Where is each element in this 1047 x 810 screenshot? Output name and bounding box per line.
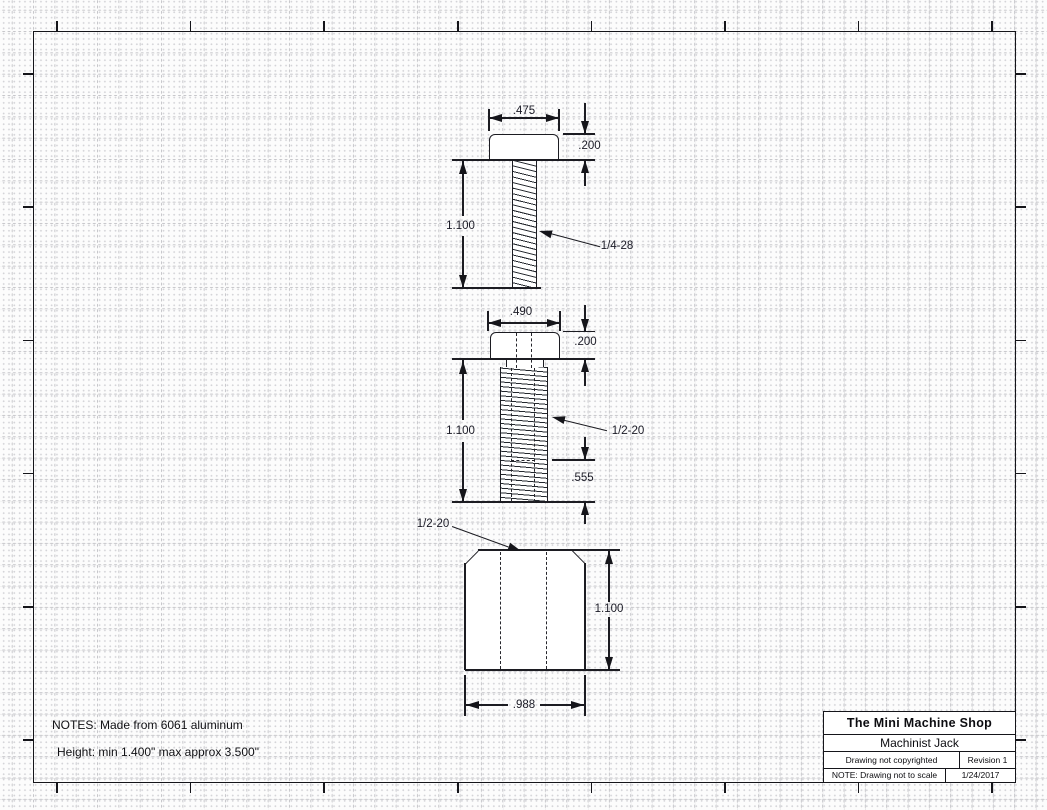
dimension-arrowhead: [459, 161, 467, 174]
dimension-arrowhead: [581, 359, 589, 372]
label-base-thread: 1/2-20: [414, 518, 452, 531]
title-block-row-scale: NOTE: Drawing not to scale 1/24/2017: [824, 768, 1015, 783]
border-tick-right: [1016, 340, 1026, 342]
hidden-hole-line: [546, 552, 547, 669]
border-tick-bottom: [858, 783, 860, 793]
dimension-arrowhead: [581, 160, 589, 173]
hidden-hole-bottom-line: [511, 460, 535, 461]
dimension-arrowhead: [547, 319, 560, 327]
jack-base-body: [465, 550, 585, 670]
note-height-range: Height: min 1.400" max approx 3.500": [57, 745, 259, 759]
border-tick-bottom: [457, 783, 459, 793]
drawing-line: [563, 331, 595, 332]
middle-screw-threaded-body: [500, 367, 548, 502]
border-tick-left: [23, 739, 33, 741]
dimension-arrowhead: [466, 701, 479, 709]
dimension-arrowhead: [489, 114, 502, 122]
dimension-arrowhead: [581, 121, 589, 134]
top-screw-head: [489, 134, 559, 160]
hidden-hole-line: [534, 368, 535, 502]
border-tick-right: [1016, 739, 1026, 741]
dimension-arrowhead: [459, 275, 467, 288]
drawing-line: [464, 563, 466, 670]
border-tick-bottom: [991, 783, 993, 793]
border-tick-top: [323, 21, 325, 31]
drawing-line: [464, 675, 465, 716]
title-block-date: 1/24/2017: [945, 769, 1015, 783]
border-tick-bottom: [190, 783, 192, 793]
border-tick-top: [991, 21, 993, 31]
dimension-arrowhead: [581, 319, 589, 332]
dimension-arrowhead: [546, 114, 559, 122]
label-top-screw-thread: 1/4-28: [598, 240, 636, 253]
border-tick-top: [724, 21, 726, 31]
dimension-arrowhead: [605, 551, 613, 564]
dimension-arrowhead: [581, 502, 589, 515]
dim-base-height: 1.100: [590, 603, 628, 616]
title-block-part-name: Machinist Jack: [824, 734, 1015, 752]
drawing-line: [584, 563, 586, 670]
border-tick-top: [591, 21, 593, 31]
top-screw-threaded-shaft: [512, 160, 537, 288]
border-tick-top: [858, 21, 860, 31]
title-block-scale-note: NOTE: Drawing not to scale: [824, 769, 945, 783]
drawing-line: [452, 501, 595, 503]
label-middle-screw-thread: 1/2-20: [609, 425, 647, 438]
border-tick-left: [23, 606, 33, 608]
dim-middle-screw-width: .490: [503, 306, 539, 319]
hidden-hole-line: [500, 552, 501, 669]
drawing-line: [465, 669, 620, 671]
hidden-hole-line: [531, 333, 532, 368]
dim-top-screw-width: .475: [506, 105, 542, 118]
border-tick-right: [1016, 606, 1026, 608]
dimension-arrowhead: [459, 489, 467, 502]
dim-top-screw-length: 1.100: [442, 220, 479, 233]
title-block-row-copyright: Drawing not copyrighted Revision 1: [824, 751, 1015, 768]
middle-screw-head: [490, 332, 560, 359]
border-tick-right: [1016, 73, 1026, 75]
dimension-arrowhead: [488, 319, 501, 327]
note-material: NOTES: Made from 6061 aluminum: [52, 718, 243, 732]
border-tick-left: [23, 73, 33, 75]
border-tick-bottom: [591, 783, 593, 793]
title-block-copyright: Drawing not copyrighted: [824, 752, 959, 768]
border-tick-bottom: [56, 783, 58, 793]
dimension-arrowhead: [459, 361, 467, 374]
hidden-hole-line: [511, 368, 512, 502]
border-tick-right: [1016, 473, 1026, 475]
dim-middle-screw-length: 1.100: [442, 425, 479, 438]
border-tick-left: [23, 340, 33, 342]
border-tick-left: [23, 206, 33, 208]
title-block-revision: Revision 1: [959, 752, 1015, 768]
drawing-line: [452, 358, 595, 360]
dim-base-width: .988: [506, 699, 542, 712]
dimension-arrowhead: [571, 701, 584, 709]
dimension-arrowhead: [581, 447, 589, 460]
border-tick-top: [56, 21, 58, 31]
dim-top-screw-head-height: .200: [576, 140, 603, 153]
dim-middle-screw-head-height: .200: [572, 336, 599, 349]
dimension-arrowhead: [605, 657, 613, 670]
border-tick-bottom: [724, 783, 726, 793]
border-tick-bottom: [323, 783, 325, 793]
border-tick-right: [1016, 206, 1026, 208]
hidden-hole-line: [516, 333, 517, 368]
dim-middle-screw-hole-depth: .555: [570, 472, 595, 485]
drawing-line: [563, 133, 595, 134]
drawing-line: [452, 159, 595, 161]
drawing-line: [584, 675, 585, 716]
border-tick-top: [190, 21, 192, 31]
title-block-company: The Mini Machine Shop: [824, 712, 1015, 734]
drawing-sheet: .475 .200 1.100 1/4-28 .490 .200 1.100 1…: [0, 0, 1047, 810]
border-tick-left: [23, 473, 33, 475]
border-tick-top: [457, 21, 459, 31]
title-block: The Mini Machine Shop Machinist Jack Dra…: [823, 711, 1016, 783]
drawing-line: [478, 549, 620, 551]
